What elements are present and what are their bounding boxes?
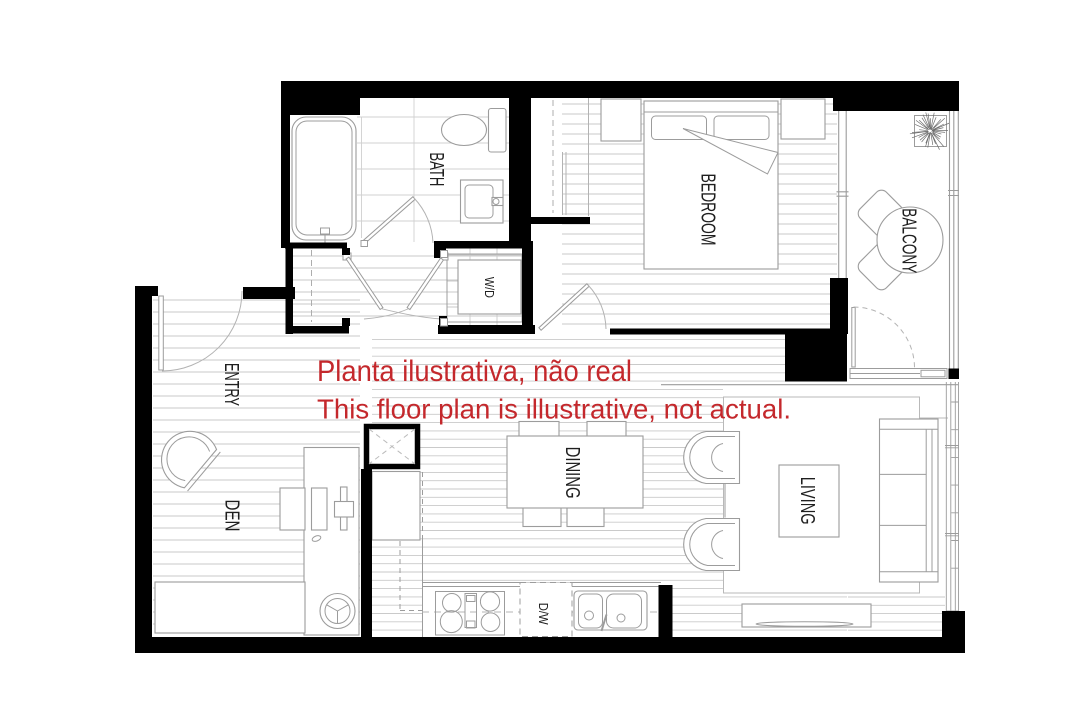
svg-text:BATH: BATH	[425, 152, 447, 186]
svg-text:DEN: DEN	[221, 500, 243, 532]
svg-text:BEDROOM: BEDROOM	[696, 174, 718, 246]
svg-text:LIVING: LIVING	[796, 477, 818, 525]
svg-text:DINING: DINING	[561, 447, 583, 499]
svg-text:D/W: D/W	[536, 603, 551, 626]
svg-text:W/D: W/D	[482, 277, 497, 298]
svg-text:This floor plan is illustrativ: This floor plan is illustrative, not act…	[317, 394, 791, 425]
svg-text:Planta ilustrativa, não real: Planta ilustrativa, não real	[317, 355, 632, 388]
svg-text:ENTRY: ENTRY	[220, 363, 242, 406]
svg-text:BALCONY: BALCONY	[897, 208, 919, 273]
